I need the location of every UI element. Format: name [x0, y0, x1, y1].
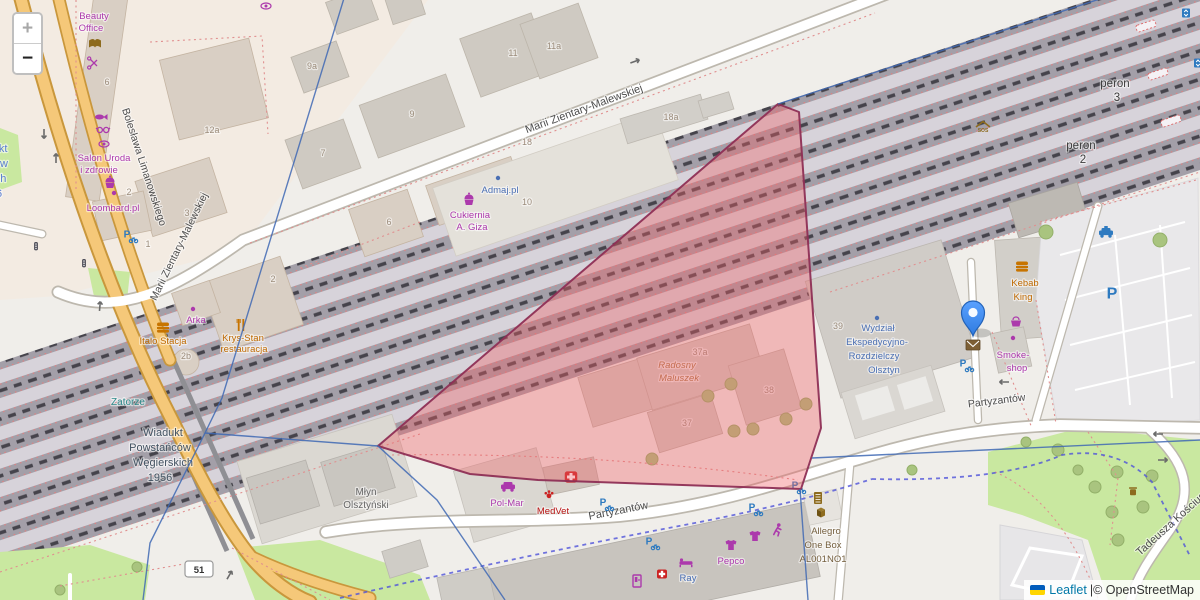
- map-label: 51: [194, 565, 205, 576]
- map-label: Olsztyn: [868, 365, 900, 376]
- map-label: 2: [270, 274, 275, 284]
- map-label: Office: [79, 23, 104, 34]
- map[interactable]: P P SOS: [0, 0, 1200, 600]
- map-label: Kebab: [1011, 278, 1038, 289]
- map-label: Arka: [186, 315, 206, 326]
- lift-icon: [1182, 9, 1190, 18]
- map-label: rskich: [0, 173, 6, 185]
- map-label: 18: [522, 137, 532, 147]
- dotB-icon: [496, 176, 500, 180]
- map-label: 6: [104, 77, 109, 87]
- map-label: Powstańców: [129, 442, 191, 454]
- lift-icon: [1194, 59, 1200, 68]
- envelope-icon: [966, 340, 980, 350]
- map-label: Ray: [680, 573, 697, 584]
- dotP-icon: [191, 307, 195, 311]
- map-label: Olsztyński: [343, 500, 389, 511]
- firstaid-icon: [657, 570, 667, 579]
- openstreetmap-link[interactable]: © OpenStreetMap: [1093, 583, 1194, 597]
- trash-icon: [1129, 487, 1137, 495]
- map-label: peron: [1066, 140, 1095, 152]
- map-label: One Box: [805, 540, 842, 551]
- map-label: Allegro: [811, 526, 841, 537]
- map-label: 2: [126, 187, 131, 197]
- map-label: shop: [1007, 363, 1028, 374]
- map-label: Pol-Mar: [490, 498, 523, 509]
- map-label: Młyn: [355, 487, 376, 498]
- map-label: 6: [386, 217, 391, 227]
- map-label: 39: [833, 321, 843, 331]
- map-label: 12a: [204, 125, 219, 135]
- map-label: i zdrowie: [80, 165, 118, 176]
- dotB-icon: [875, 316, 879, 320]
- map-label: 2: [1080, 154, 1086, 166]
- map-label: Pepco: [718, 556, 745, 567]
- map-label: Loombard.pl: [87, 203, 140, 214]
- map-label: MedVet: [537, 506, 570, 517]
- map-label: King: [1013, 292, 1032, 303]
- map-label: A. Giza: [456, 222, 488, 233]
- map-label: peron: [1100, 78, 1129, 90]
- locker-icon: [814, 492, 822, 504]
- map-canvas[interactable]: P P SOS: [0, 0, 1200, 600]
- map-label: AL001NO1: [799, 554, 846, 565]
- pbig-icon: [1107, 286, 1118, 303]
- zoom-out-button[interactable]: −: [14, 44, 41, 73]
- map-label: Węgierskich: [133, 457, 193, 469]
- map-label: Zatorze: [111, 397, 145, 408]
- map-label: 7: [320, 148, 325, 158]
- dotP-icon: [112, 191, 116, 195]
- map-label: Ekspedycyjno-: [846, 337, 908, 348]
- map-label: 3: [1114, 92, 1120, 104]
- dotP-icon: [1011, 336, 1015, 340]
- zoom-control: + −: [12, 12, 43, 75]
- map-label: Krys-Stan: [222, 333, 264, 344]
- map-label: 11: [508, 48, 517, 58]
- burger-icon: [157, 323, 169, 333]
- map-label: Cukiernia: [450, 210, 491, 221]
- map-label: 9a: [307, 61, 317, 71]
- box-icon: [817, 508, 825, 518]
- map-label: Beauty: [79, 11, 109, 22]
- map-label: Wiadukt: [143, 427, 183, 439]
- map-label: Smoke-: [997, 350, 1030, 361]
- map-label: 1956: [148, 472, 172, 484]
- map-label: 3: [184, 208, 189, 218]
- map-label: 10: [522, 197, 532, 207]
- leaflet-link[interactable]: Leaflet: [1049, 583, 1087, 597]
- map-label: Admaj.pl: [482, 185, 519, 196]
- map-label: 1: [145, 239, 150, 249]
- map-label: 9: [409, 109, 414, 119]
- attribution: Leaflet | © OpenStreetMap: [1024, 580, 1200, 600]
- map-label: Rozdzielczy: [849, 351, 900, 362]
- burger-icon: [1016, 262, 1028, 272]
- tlight-icon: [82, 259, 86, 267]
- map-label: 11a: [547, 41, 561, 51]
- map-label: Wydział: [861, 323, 895, 334]
- map-label: 18a: [663, 112, 678, 122]
- tlight-icon: [34, 242, 38, 250]
- map-label: 56: [0, 188, 2, 200]
- map-label: ańców: [0, 158, 8, 170]
- map-label: Salon Uroda: [78, 153, 132, 164]
- ukraine-flag-icon: [1030, 585, 1045, 595]
- map-label: 2b: [181, 351, 191, 361]
- map-label: restauracja: [221, 344, 269, 355]
- map-label: dukt: [0, 143, 7, 155]
- map-label: Italo Stacja: [140, 336, 188, 347]
- zoom-in-button[interactable]: +: [14, 14, 41, 44]
